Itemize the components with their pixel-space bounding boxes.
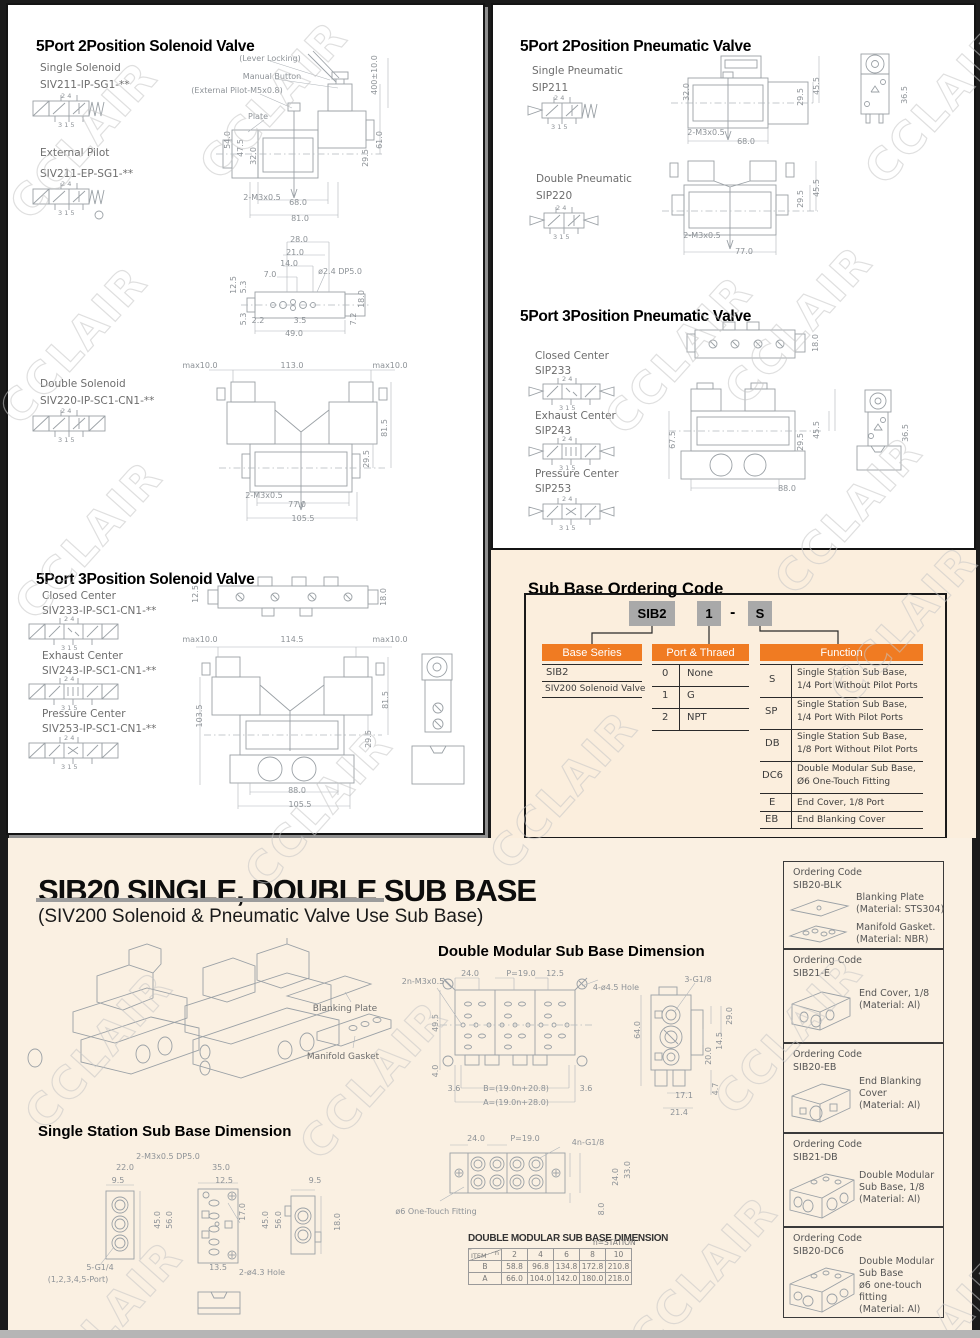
subbase-title: SIB20 SINGLE, DOUBLE SUB BASE [38, 873, 536, 909]
item-desc: ø6 one-touch [859, 1280, 922, 1292]
drawing-single-station-view3 [285, 1190, 325, 1262]
column-header-port-thread: Port & Thraed [652, 644, 749, 661]
dim-label: 4n-G1/8 [572, 1139, 604, 1147]
double-modular-fitting-icon [786, 1260, 858, 1318]
title-underline [36, 898, 384, 902]
dim-label: 14.0 [280, 260, 298, 268]
dim-label: 113.0 [281, 362, 304, 370]
item-desc: Double Modular [859, 1256, 934, 1268]
item-desc: Sub Base [859, 1268, 903, 1280]
function-desc: 1/4 Port With Pilot Ports [797, 713, 903, 723]
dim-label: 54.0 [224, 131, 232, 149]
drawing-top-view-3pos-pneumatic [683, 318, 818, 370]
table-note: n=STATION [593, 1238, 636, 1247]
dim-label: 2-M3x0.5 DP5.0 [136, 1153, 200, 1161]
dim-label: 2-M3x0.5 [245, 492, 282, 500]
function-code: S [769, 674, 775, 685]
dim-label: 4.0 [432, 1065, 440, 1078]
item-desc: Double Modular [859, 1170, 934, 1182]
table-header-row: n ITEM 2 4 6 8 10 [469, 1249, 632, 1261]
drawing-front-view-3pos-pneumatic [663, 383, 841, 495]
svg-text:2 4: 2 4 [64, 675, 74, 683]
end-cover-icon [786, 984, 856, 1040]
dim-label: 24.0 [612, 1168, 620, 1186]
product-label: Single Solenoid [40, 62, 121, 74]
dim-label: 33.0 [624, 1161, 632, 1179]
dim-label: 105.5 [292, 515, 315, 523]
row-label: B [469, 1261, 502, 1273]
product-label: Closed Center [42, 590, 116, 602]
drawing-side-view-3pos-solenoid [408, 650, 470, 790]
dim-label: 5.3 [240, 313, 248, 326]
item-desc: fitting [859, 1292, 887, 1304]
function-code: SP [765, 706, 777, 717]
valve-symbol-5-2-external-pilot: 2 4 3 1 5 [25, 178, 125, 222]
sidebar-box-sib21-e: Ordering Code SIB21-E End Cover, 1/8 (Ma… [783, 949, 944, 1043]
dim-label: 35.0 [212, 1164, 230, 1172]
dim-label: 18.0 [358, 290, 366, 308]
dim-label: 3.6 [448, 1085, 461, 1093]
callout: Plate [248, 113, 268, 121]
dim-label: 45.5 [813, 421, 821, 439]
svg-text:2 4: 2 4 [562, 495, 572, 503]
dim-label: 81.5 [381, 419, 389, 437]
dim-label: ø2.4 DP5.0 [318, 268, 362, 276]
iso-label-blanking-plate: Blanking Plate [313, 1004, 377, 1014]
dim-label: 49.5 [432, 1014, 440, 1032]
item-desc: (Material: NBR) [856, 934, 928, 946]
table-row: B 58.8 96.8 134.8 172.8 210.8 [469, 1261, 632, 1273]
cell: 180.0 [580, 1273, 606, 1285]
dim-label: 81.5 [382, 691, 390, 709]
dim-label: 29.5 [797, 190, 805, 208]
dim-label: 4.7 [712, 1083, 720, 1096]
cell: 104.0 [528, 1273, 554, 1285]
dim-label: 400±10.0 [371, 55, 379, 95]
dim-label: 5.3 [240, 281, 248, 294]
svg-text:3 1 5: 3 1 5 [553, 233, 570, 241]
sidebar-box-sib21-db: Ordering Code SIB21-DB Double Modular Su… [783, 1133, 944, 1227]
sidebar-box-sib20-eb: Ordering Code SIB20-EB End Blanking Cove… [783, 1043, 944, 1133]
cell: 172.8 [580, 1261, 606, 1273]
product-label: Single Pneumatic [532, 65, 623, 77]
dim-label: 12.5 [192, 585, 200, 603]
dim-label: 68.0 [737, 138, 755, 146]
iso-label-manifold-gasket: Manifold Gasket [307, 1052, 379, 1062]
ordering-code-label: Ordering Code [793, 867, 862, 878]
table-corner-cell: n ITEM [469, 1249, 502, 1261]
dim-label: 18.0 [812, 334, 820, 352]
dim-label: P=19.0 [510, 1135, 539, 1143]
dim-label: 21.4 [670, 1109, 688, 1117]
dim-label: 103.5 [196, 705, 204, 728]
svg-text:2 4: 2 4 [554, 94, 564, 102]
dim-label: 7.0 [264, 271, 277, 279]
dim-label: 67.5 [669, 431, 677, 449]
dim-label: 45.0 [262, 1211, 270, 1229]
dim-label: 29.5 [797, 433, 805, 451]
cell: 96.8 [528, 1261, 554, 1273]
drawing-side-view-3pos-pneumatic [853, 388, 905, 473]
dim-label: 2.2 [252, 317, 265, 325]
dim-label: 29.5 [362, 149, 370, 167]
col-header: 10 [606, 1249, 632, 1261]
product-label: Exhaust Center [535, 410, 616, 422]
svg-text:2 4: 2 4 [562, 375, 572, 383]
drawing-single-station-view2 [192, 1183, 244, 1269]
dim-label: 5-G1/4 [86, 1264, 113, 1272]
valve-symbol-5-3-closed-center-pneumatic: 2 4 3 1 5 [518, 373, 628, 413]
item-desc: (Material: Al) [859, 1194, 920, 1206]
col-header: 8 [580, 1249, 606, 1261]
valve-symbol-5-2-double-solenoid: 2 4 3 1 5 [25, 405, 125, 445]
dim-label: 29.5 [363, 450, 371, 468]
dim-label: 9.5 [112, 1177, 125, 1185]
function-code: EB [765, 814, 778, 825]
svg-text:2 4: 2 4 [64, 734, 74, 742]
dim-label: 17.1 [675, 1092, 693, 1100]
function-desc: End Blanking Cover [797, 815, 885, 825]
dim-label: 64.0 [634, 1021, 642, 1039]
item-desc: End Cover, 1/8 [859, 988, 929, 1000]
ordering-code-value: SIB20-BLK [793, 880, 842, 891]
svg-text:3 1 5: 3 1 5 [58, 121, 75, 129]
function-code: DC6 [762, 770, 783, 781]
dim-label: A=(19.0n+28.0) [483, 1099, 549, 1107]
page-bottom-strip [0, 1330, 980, 1338]
item-desc: (Material: Al) [859, 1100, 920, 1112]
valve-symbol-5-3-exhaust-center-pneumatic: 2 4 3 1 5 [518, 433, 628, 473]
item-desc: Blanking Plate [856, 892, 924, 904]
dim-label: 88.0 [288, 787, 306, 795]
dim-label: 32.0 [250, 147, 258, 165]
dim-label: 9.5 [309, 1177, 322, 1185]
end-blanking-cover-icon [786, 1078, 856, 1132]
dim-label: (1,2,3,4,5-Port) [48, 1276, 109, 1284]
cell: 134.8 [554, 1261, 580, 1273]
dim-label: 20.0 [705, 1047, 713, 1065]
dim-label: 77.0 [288, 501, 306, 509]
port-code: 0 [662, 668, 668, 679]
dim-label: 7.2 [350, 313, 358, 326]
svg-text:3 1 5: 3 1 5 [61, 763, 78, 771]
col-header: 2 [502, 1249, 528, 1261]
blanking-plate-gasket-icon [788, 896, 854, 946]
dim-label: 32.0 [683, 83, 691, 101]
dim-label: 29.0 [726, 1007, 734, 1025]
function-desc: Single Station Sub Base, [797, 700, 907, 710]
panel-ordering-code: Sub Base Ordering Code SIB2 1 - S Base S… [491, 550, 976, 838]
item-desc: End Blanking [859, 1076, 921, 1088]
drawing-isometric-assemblies [35, 940, 425, 1110]
dim-label: 2-M3x0.5 [687, 129, 724, 137]
dim-label: max10.0 [372, 636, 407, 644]
dim-label: 2-ø4.3 Hole [239, 1269, 285, 1277]
dim-label: 47.5 [237, 139, 245, 157]
product-code: SIP220 [536, 190, 572, 202]
dim-label: max10.0 [182, 636, 217, 644]
port-code: 2 [662, 712, 668, 723]
dim-label: max10.0 [372, 362, 407, 370]
dim-label: 68.0 [289, 199, 307, 207]
function-code: DB [765, 738, 780, 749]
item-desc: Manifold Gasket. [856, 922, 935, 934]
dim-label: 18.0 [380, 588, 388, 606]
function-code: E [769, 797, 775, 808]
svg-text:2 4: 2 4 [64, 615, 74, 623]
svg-text:3 1 5: 3 1 5 [58, 209, 75, 217]
sidebar-box-sib20-dc6: Ordering Code SIB20-DC6 Double Modular S… [783, 1227, 944, 1318]
dim-label: 12.5 [215, 1177, 233, 1185]
function-desc: End Cover, 1/8 Port [797, 798, 884, 808]
item-desc: Sub Base, 1/8 [859, 1182, 925, 1194]
dimension-table: n ITEM 2 4 6 8 10 B 58.8 96.8 134.8 172.… [468, 1248, 632, 1285]
item-desc: (Material: Al) [859, 1304, 920, 1316]
col-header: 4 [528, 1249, 554, 1261]
row-label: A [469, 1273, 502, 1285]
port-value: NPT [687, 712, 707, 723]
base-series-desc: SIV200 Solenoid Valve [545, 684, 645, 694]
drawing-side-view-single-pneumatic [853, 52, 901, 127]
dim-label: 14.5 [716, 1032, 724, 1050]
cell: 210.8 [606, 1261, 632, 1273]
dim-label: 45.5 [813, 179, 821, 197]
valve-symbol-5-3-pressure-center-pneumatic: 2 4 3 1 5 [518, 493, 628, 533]
cell: 142.0 [554, 1273, 580, 1285]
svg-text:2 4: 2 4 [61, 180, 71, 188]
col-header: 6 [554, 1249, 580, 1261]
single-station-dimension-title: Single Station Sub Base Dimension [38, 1123, 291, 1140]
dim-label: 28.0 [290, 236, 308, 244]
product-label: External Pilot [40, 147, 109, 159]
port-value: G [687, 690, 695, 701]
valve-symbol-5-2-single-pneumatic: 2 4 3 1 5 [518, 92, 618, 132]
function-desc: 1/4 Port Without Pilot Ports [797, 681, 918, 691]
cell: 58.8 [502, 1261, 528, 1273]
product-label: Pressure Center [535, 468, 619, 480]
function-desc: Ø6 One-Touch Fitting [797, 777, 890, 787]
datasheet-page: 5Port 2Position Solenoid Valve Single So… [0, 0, 980, 1338]
port-value: None [687, 668, 713, 679]
ordering-code-value: SIB21-E [793, 968, 830, 979]
dim-label: 17.0 [239, 1203, 247, 1221]
dim-label: ø6 One-Touch Fitting [395, 1208, 476, 1216]
dim-label: 12.5 [230, 276, 238, 294]
callout: (Lever Locking) [239, 55, 301, 63]
dim-label: 2-M3x0.5 [243, 194, 280, 202]
product-label: Exhaust Center [42, 650, 123, 662]
item-desc: (Material: Al) [859, 1000, 920, 1012]
dim-label: 18.0 [334, 1213, 342, 1231]
valve-symbol-5-2-single-solenoid: 2 4 3 1 5 [25, 90, 125, 130]
corner-n: n [495, 1249, 499, 1257]
dim-label: 77.0 [735, 248, 753, 256]
product-label: Double Pneumatic [536, 173, 632, 185]
callout: Manual Button [243, 73, 301, 81]
svg-text:2 4: 2 4 [61, 92, 71, 100]
valve-symbol-5-3-closed-center: 2 4 3 1 5 [20, 613, 130, 653]
dim-label: max10.0 [182, 362, 217, 370]
port-code: 1 [662, 690, 668, 701]
panel-solenoid-valves: 5Port 2Position Solenoid Valve Single So… [6, 3, 485, 835]
cell: 66.0 [502, 1273, 528, 1285]
dim-label: 3.6 [580, 1085, 593, 1093]
ordering-code-label: Ordering Code [793, 1233, 862, 1244]
subbase-subtitle: (SIV200 Solenoid & Pneumatic Valve Use S… [38, 906, 483, 928]
svg-text:2 4: 2 4 [556, 204, 566, 212]
dim-label: 45.5 [813, 77, 821, 95]
dim-label: 13.5 [209, 1264, 227, 1272]
function-desc: 1/8 Port Without Pilot Ports [797, 745, 918, 755]
ordering-code-value: SIB21-DB [793, 1152, 838, 1163]
dim-label: 81.0 [291, 215, 309, 223]
valve-symbol-5-2-double-pneumatic: 2 4 3 1 5 [520, 202, 620, 242]
dim-label: P=19.0 [506, 970, 535, 978]
table-title: DOUBLE MODULAR SUB BASE DIMENSION [468, 1233, 668, 1244]
drawing-double-modular-bottom-view [440, 1145, 590, 1207]
dim-label: B=(19.0n+20.8) [483, 1085, 549, 1093]
dim-label: 21.0 [286, 249, 304, 257]
svg-text:2 4: 2 4 [562, 435, 572, 443]
product-label: Closed Center [535, 350, 609, 362]
function-desc: Single Station Sub Base, [797, 732, 907, 742]
sidebar-box-sib20-blk: Ordering Code SIB20-BLK Blanking Plate (… [783, 861, 944, 949]
dim-label: 45.0 [154, 1211, 162, 1229]
valve-symbol-5-3-pressure-center: 2 4 3 1 5 [20, 732, 130, 772]
double-modular-dimension-title: Double Modular Sub Base Dimension [438, 943, 705, 960]
ordering-code-label: Ordering Code [793, 1139, 862, 1150]
dim-label: 36.5 [901, 86, 909, 104]
dim-label: 56.0 [275, 1211, 283, 1229]
valve-symbol-5-3-exhaust-center: 2 4 3 1 5 [20, 673, 130, 713]
dim-label: 3-G1/8 [684, 976, 711, 984]
ordering-code-value: SIB20-EB [793, 1062, 836, 1073]
item-desc: Cover [859, 1088, 887, 1100]
product-label: Pressure Center [42, 708, 126, 720]
dim-label: 105.5 [289, 801, 312, 809]
drawing-top-view-3pos-solenoid [200, 572, 395, 620]
dim-label: 24.0 [467, 1135, 485, 1143]
cell: 218.0 [606, 1273, 632, 1285]
function-desc: Single Station Sub Base, [797, 668, 907, 678]
dim-label: 8.0 [598, 1203, 606, 1216]
double-modular-base-icon [786, 1166, 858, 1226]
dim-label: 114.5 [281, 636, 304, 644]
function-desc: Double Modular Sub Base, [797, 764, 916, 774]
panel-sib20-subbase: SIB20 SINGLE, DOUBLE SUB BASE (SIV200 So… [8, 838, 972, 1330]
svg-text:3 1 5: 3 1 5 [559, 524, 576, 532]
table-row: A 66.0 104.0 142.0 180.0 218.0 [469, 1273, 632, 1285]
dim-label: 29.5 [797, 88, 805, 106]
ordering-code-value: SIB20-DC6 [793, 1246, 844, 1257]
dim-label: 3.5 [294, 317, 307, 325]
item-desc: (Material: STS304) [856, 904, 944, 916]
base-series-name: SIB2 [546, 667, 569, 678]
corner-item: ITEM [471, 1252, 487, 1260]
column-header-function: Function [760, 644, 923, 661]
dim-label: 2n-M3x0.5 [402, 978, 445, 986]
svg-text:3 1 5: 3 1 5 [551, 123, 568, 131]
dim-label: 12.5 [546, 970, 564, 978]
dim-label: 22.0 [116, 1164, 134, 1172]
callout: (External Pilot-M5x0.8) [191, 87, 282, 95]
dim-label: 29.5 [365, 730, 373, 748]
dim-label: 56.0 [166, 1211, 174, 1229]
dim-label: 49.0 [285, 330, 303, 338]
product-label: Double Solenoid [40, 378, 126, 390]
column-header-base-series: Base Series [542, 644, 642, 661]
dim-label: 61.0 [376, 131, 384, 149]
dim-label: 88.0 [778, 485, 796, 493]
dim-label: 2-M3x0.5 [683, 232, 720, 240]
dim-label: 24.0 [461, 970, 479, 978]
drawing-single-station-view1 [100, 1185, 145, 1267]
panel-pneumatic-valves: 5Port 2Position Pneumatic Valve Single P… [491, 3, 976, 550]
svg-text:2 4: 2 4 [61, 407, 71, 415]
drawing-single-station-bottom-view [194, 1284, 244, 1320]
svg-text:3 1 5: 3 1 5 [58, 436, 75, 444]
ordering-code-label: Ordering Code [793, 955, 862, 966]
ordering-code-label: Ordering Code [793, 1049, 862, 1060]
